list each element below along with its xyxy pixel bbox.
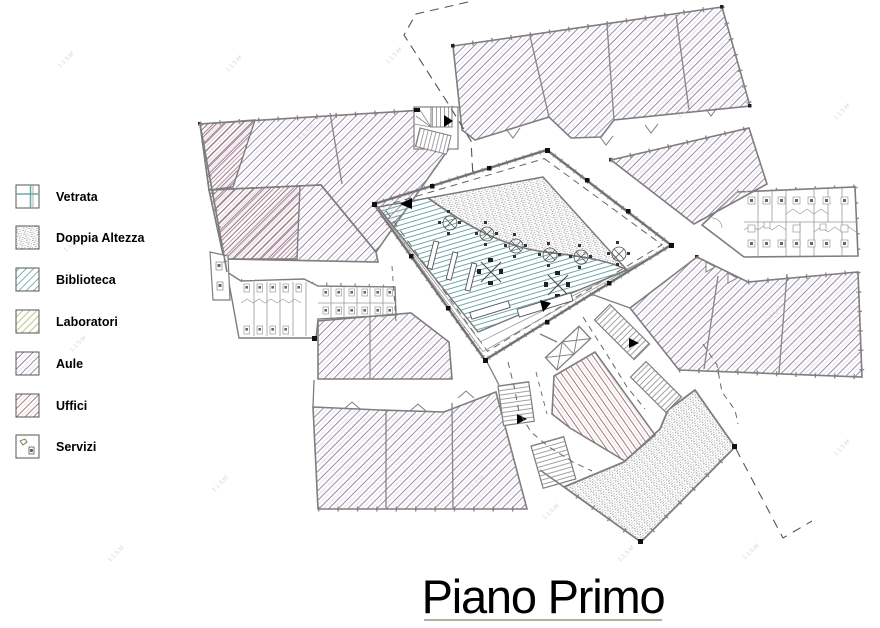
svg-text:Doppia Altezza: Doppia Altezza [56, 231, 145, 245]
svg-text:Aule: Aule [56, 357, 83, 371]
svg-text:Laboratori: Laboratori [56, 315, 118, 329]
svg-text:Piano Primo: Piano Primo [422, 570, 665, 623]
svg-text:Vetrata: Vetrata [56, 190, 99, 204]
svg-text:Servizi: Servizi [56, 440, 96, 454]
svg-text:Uffici: Uffici [56, 399, 87, 413]
svg-text:Biblioteca: Biblioteca [56, 273, 117, 287]
